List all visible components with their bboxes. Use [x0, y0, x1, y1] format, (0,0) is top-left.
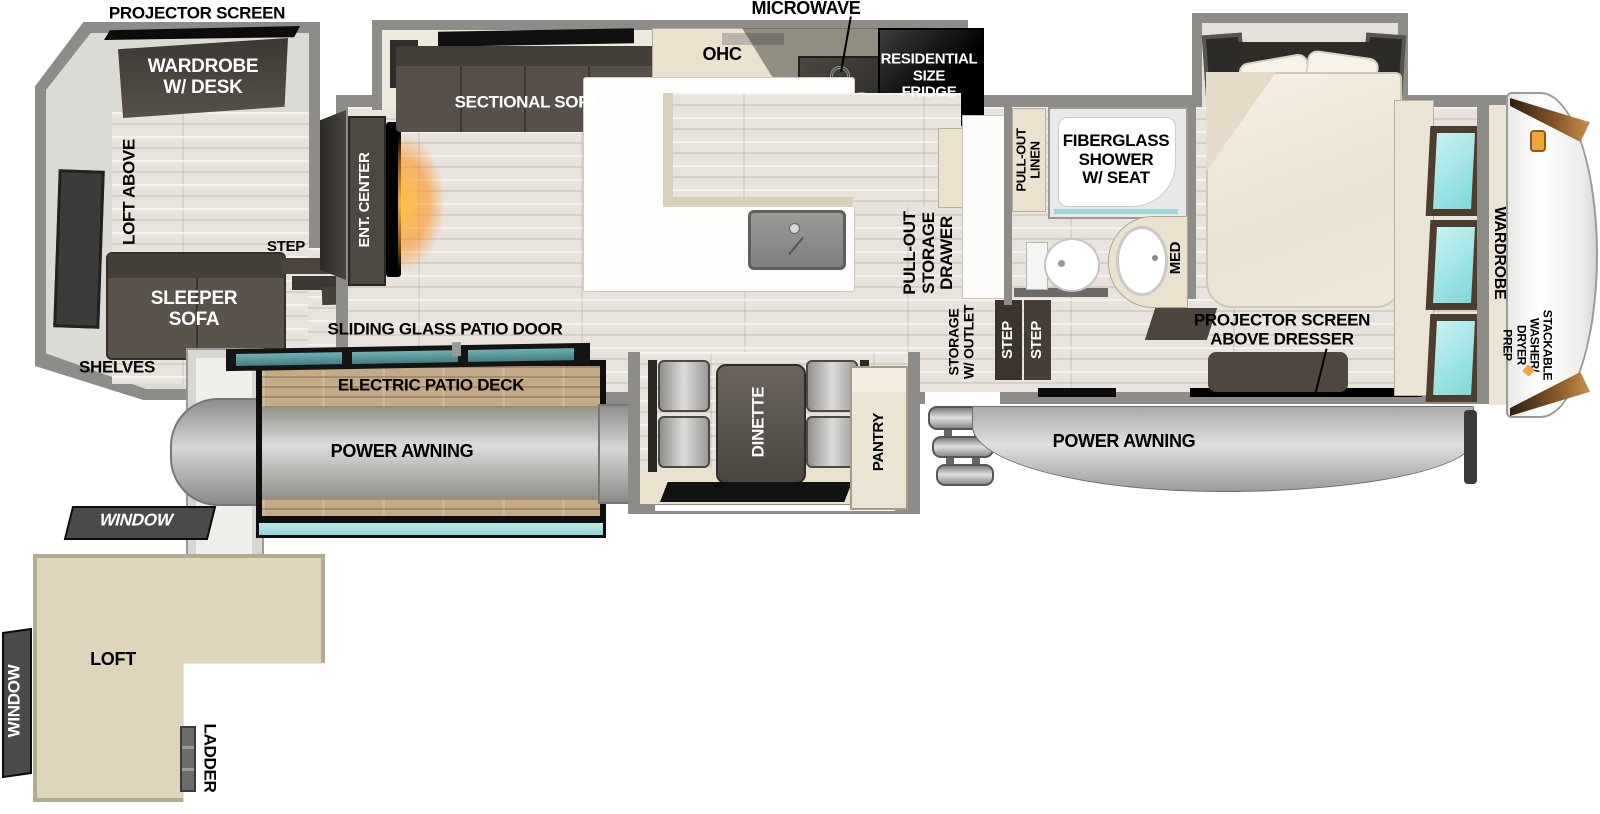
toilet-bowl [1044, 238, 1100, 292]
loft-above-label: LOFT ABOVE [121, 139, 140, 245]
tv-left-wall [53, 169, 104, 329]
flush-button [1058, 260, 1065, 267]
door-pane [468, 348, 574, 362]
projector-above-dresser-label: PROJECTOR SCREEN ABOVE DRESSER [1194, 311, 1370, 348]
fireplace-glow [398, 135, 444, 270]
window-top-label: WINDOW [97, 512, 174, 531]
storage-w-outlet-label: STORAGE W/ OUTLET [947, 305, 978, 379]
fridge-label: RESIDENTIAL SIZE FRIDGE [881, 51, 978, 101]
shelves-label: SHELVES [79, 359, 155, 378]
shower-door-track [1054, 209, 1178, 214]
sleeper-sofa-backrest [108, 254, 284, 278]
ladder [180, 726, 196, 792]
vanity-sink [1116, 226, 1168, 296]
step-label: STEP [267, 239, 305, 256]
entry-door-gap [925, 392, 1000, 404]
dinette-bench-seat [658, 416, 710, 468]
faucet-handle [788, 237, 804, 255]
hall-counter [962, 115, 1006, 299]
ladder-rung [182, 746, 194, 749]
hall-cabinet [938, 128, 964, 208]
wardrobe-bedroom-label: WARDROBE [1490, 207, 1508, 300]
wardrobe-mirror [1426, 220, 1483, 310]
dresser [1208, 352, 1348, 392]
ent-center-side-panel [320, 110, 346, 280]
kitchen-aisle-pocket [663, 93, 853, 207]
ent-center-label: ENT. CENTER [357, 152, 374, 247]
front-cap-handle [1530, 130, 1546, 152]
mirror-glass [1433, 227, 1475, 303]
loft-label: LOFT [90, 650, 136, 670]
fiberglass-shower-label: FIBERGLASS SHOWER W/ SEAT [1063, 132, 1170, 188]
wardrobe-desk-label: WARDROBE W/ DESK [148, 57, 259, 99]
vanity-faucet [1152, 255, 1158, 261]
wardrobe-mirror [1426, 314, 1483, 402]
patio-deck-board-bottom [262, 498, 600, 516]
ladder-label: LADDER [200, 723, 219, 792]
pantry-top-face [852, 368, 906, 392]
bedroom-right-wall [1477, 95, 1489, 404]
projector-screen-label: PROJECTOR SCREEN [109, 5, 285, 24]
microwave-label: MICROWAVE [752, 0, 861, 19]
bath-left-wall [1004, 105, 1012, 305]
pull-out-storage-drawer-label: PULL-OUT STORAGE DRAWER [901, 211, 957, 295]
sectional-sofa-label: SECTIONAL SOFA [455, 94, 600, 113]
rv-floorplan: PROJECTOR SCREEN WARDROBE W/ DESK LOFT A… [0, 0, 1600, 814]
door-pane [352, 350, 458, 364]
dinette-bench-seat [658, 360, 710, 412]
power-awning-left-label: POWER AWNING [331, 442, 474, 462]
ohc-label: OHC [702, 45, 741, 65]
sleeper-sofa-label: SLEEPER SOFA [151, 289, 238, 331]
sliding-glass-patio-door-label: SLIDING GLASS PATIO DOOR [328, 321, 563, 340]
pantry-label: PANTRY [871, 413, 888, 471]
pull-out-linen-label: PULL-OUT LINEN [1015, 128, 1044, 191]
dinette-label: DINETTE [750, 387, 769, 458]
med-label: MED [1168, 242, 1185, 274]
door-pane [236, 352, 342, 366]
entry-step-bar [936, 464, 994, 486]
power-awning-right-label: POWER AWNING [1053, 432, 1196, 452]
wardrobe-mirror [1426, 126, 1483, 216]
faucet [789, 223, 800, 234]
door-handle [452, 342, 461, 356]
dinette-mat [660, 482, 852, 502]
awning-end-cap [1464, 410, 1477, 484]
window-left-label: WINDOW [6, 665, 25, 738]
mirror-glass [1433, 321, 1475, 395]
bedroom-window-strip [1038, 388, 1116, 397]
mirror-glass [1433, 133, 1475, 209]
kitchen-sink [748, 210, 846, 270]
power-awning-right-roll [972, 406, 1474, 492]
electric-patio-deck-label: ELECTRIC PATIO DECK [338, 377, 524, 396]
deck-window-strip [256, 520, 606, 538]
loft-platform [37, 558, 321, 798]
sectional-backrest [396, 46, 658, 66]
dinette-bench-frame-left [648, 360, 657, 472]
step-entry-2-label: STEP [1029, 321, 1046, 359]
awning-arm-left [170, 398, 269, 506]
ladder-rung [182, 768, 194, 771]
step-entry-1-label: STEP [1000, 321, 1017, 359]
